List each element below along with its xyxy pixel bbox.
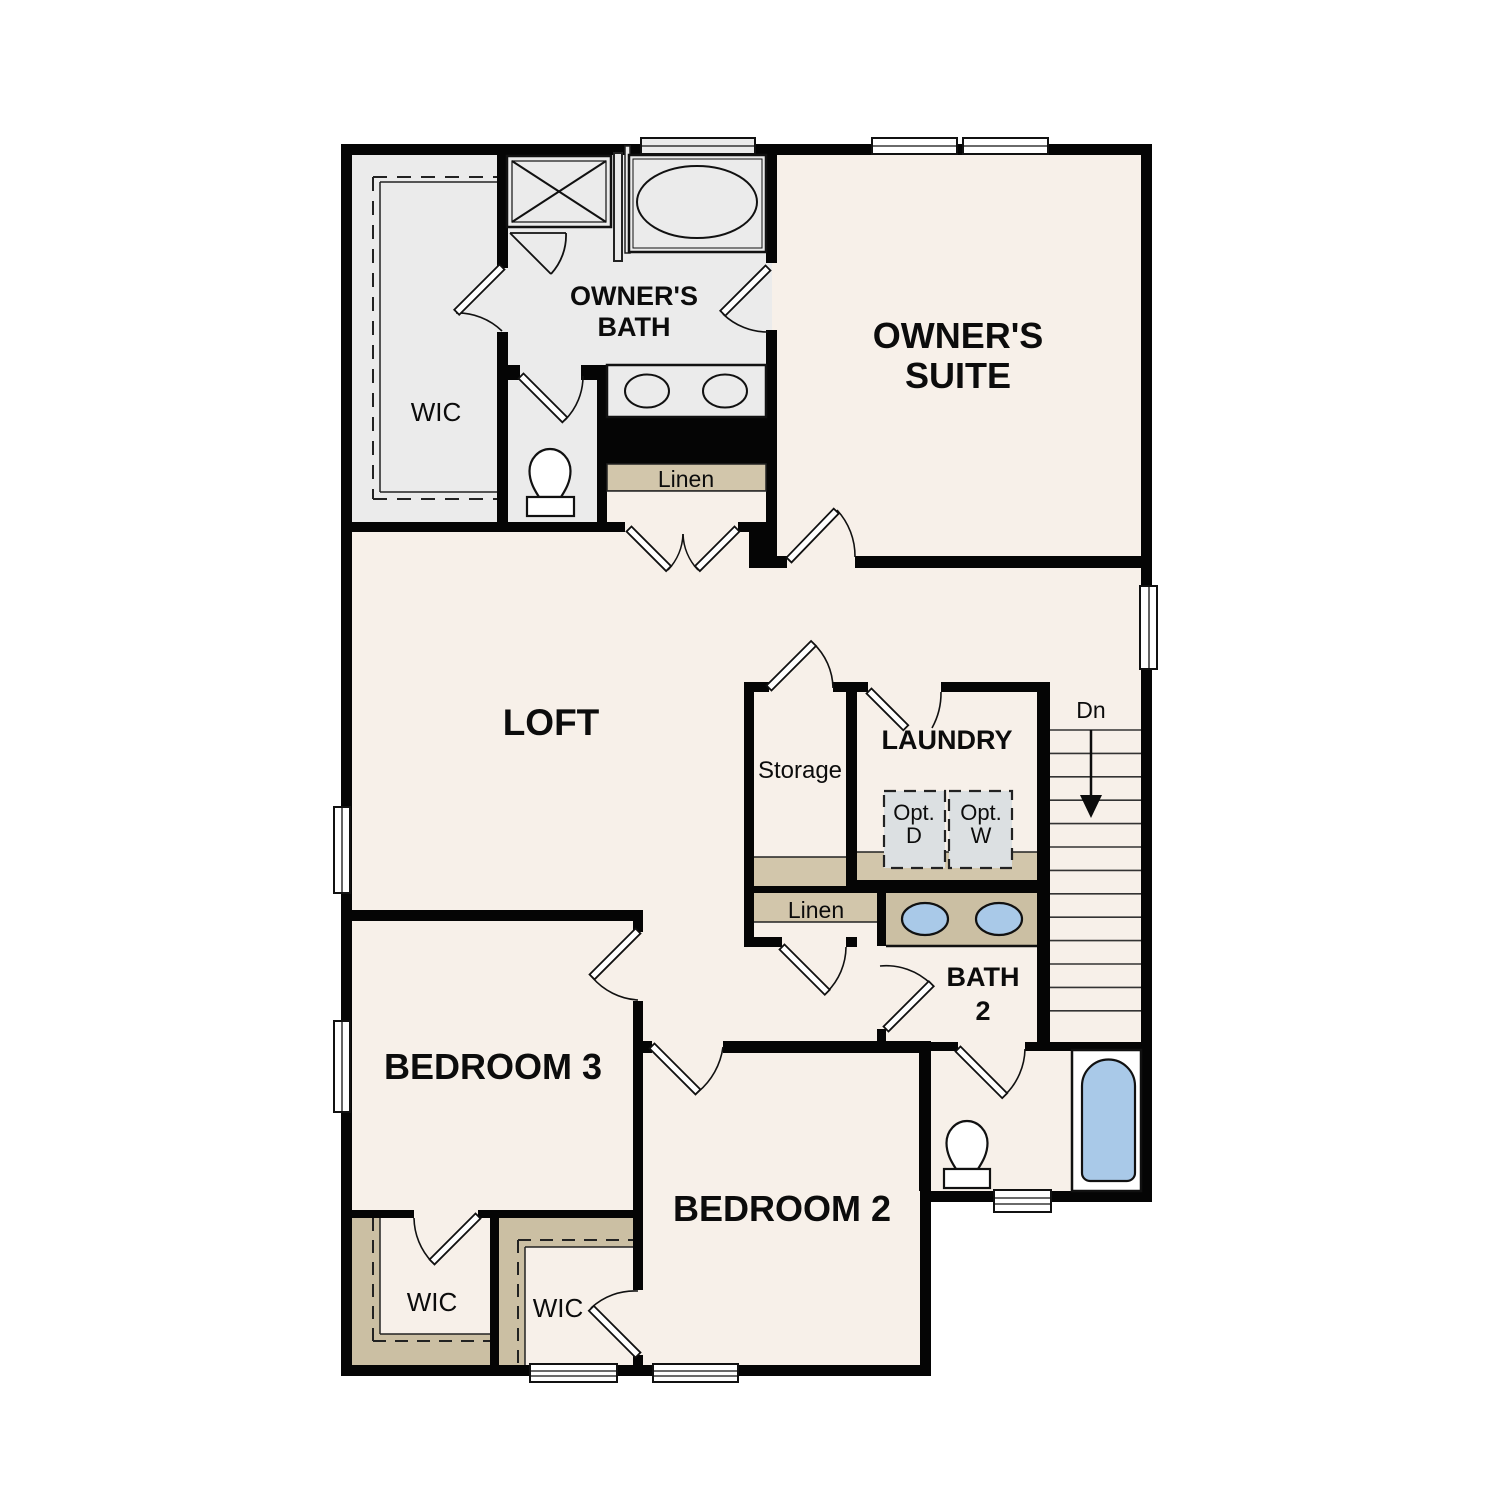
svg-text:Opt.: Opt. [893,800,935,825]
svg-text:BATH: BATH [598,312,671,342]
svg-text:WIC: WIC [533,1293,584,1323]
svg-text:2: 2 [975,996,990,1026]
svg-text:LOFT: LOFT [503,702,600,743]
svg-text:Storage: Storage [758,757,842,784]
svg-text:WIC: WIC [407,1287,458,1317]
svg-text:BEDROOM 3: BEDROOM 3 [384,1046,602,1087]
svg-text:W: W [971,823,992,848]
svg-text:BATH: BATH [947,962,1020,992]
svg-text:LAUNDRY: LAUNDRY [882,725,1013,755]
svg-text:BEDROOM 2: BEDROOM 2 [673,1188,891,1229]
svg-text:Opt.: Opt. [960,800,1002,825]
svg-text:OWNER'S: OWNER'S [873,315,1044,356]
svg-text:Linen: Linen [788,897,844,923]
svg-text:OWNER'S: OWNER'S [570,281,698,311]
svg-text:Linen: Linen [658,466,714,492]
svg-text:WIC: WIC [411,397,462,427]
svg-text:SUITE: SUITE [905,355,1011,396]
svg-text:Dn: Dn [1076,697,1105,723]
svg-text:D: D [906,823,922,848]
